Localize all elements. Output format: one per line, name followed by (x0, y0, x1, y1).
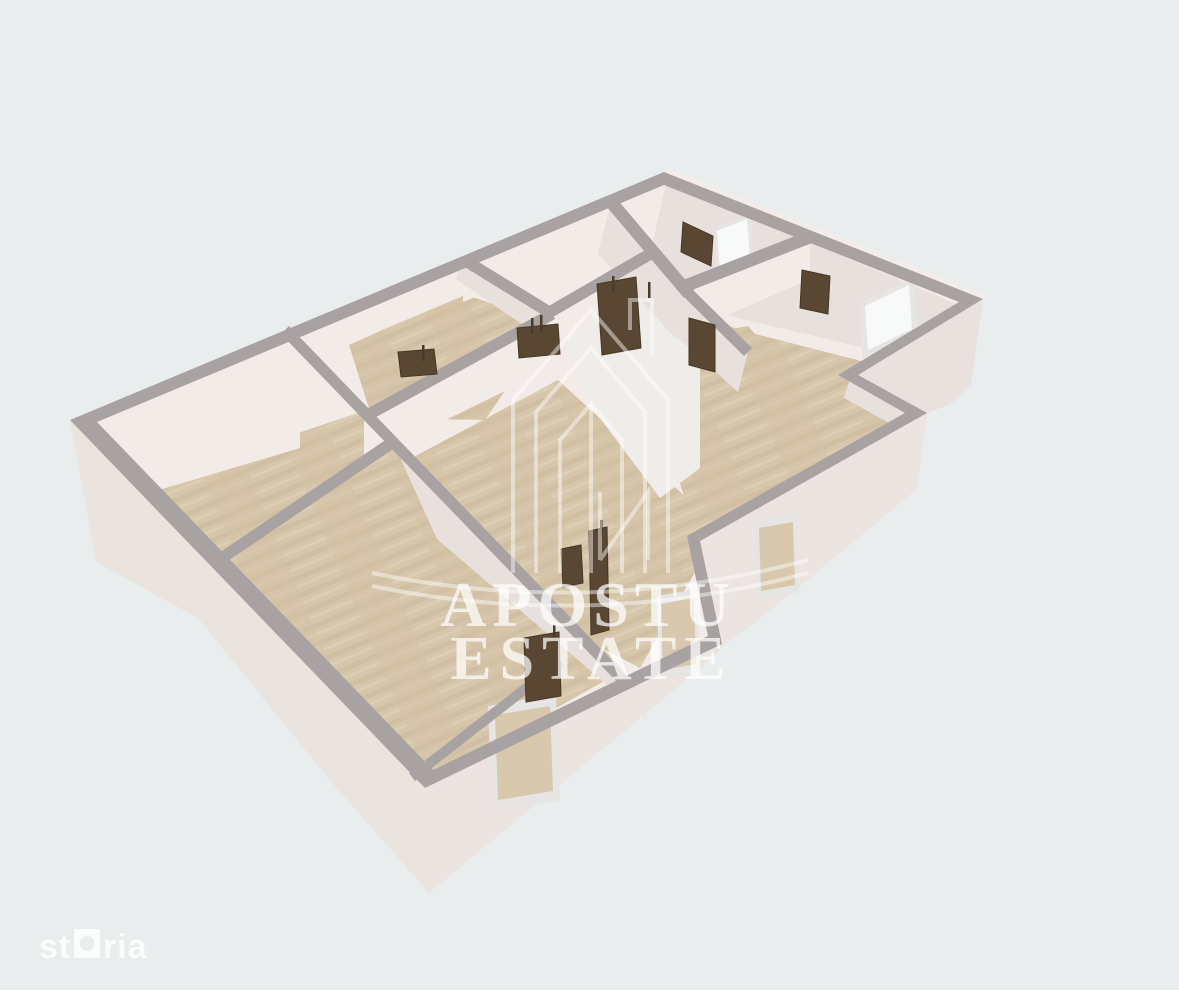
svg-text:ria: ria (103, 928, 148, 966)
svg-text:ESTATE: ESTATE (450, 625, 733, 693)
svg-text:st: st (39, 928, 71, 966)
